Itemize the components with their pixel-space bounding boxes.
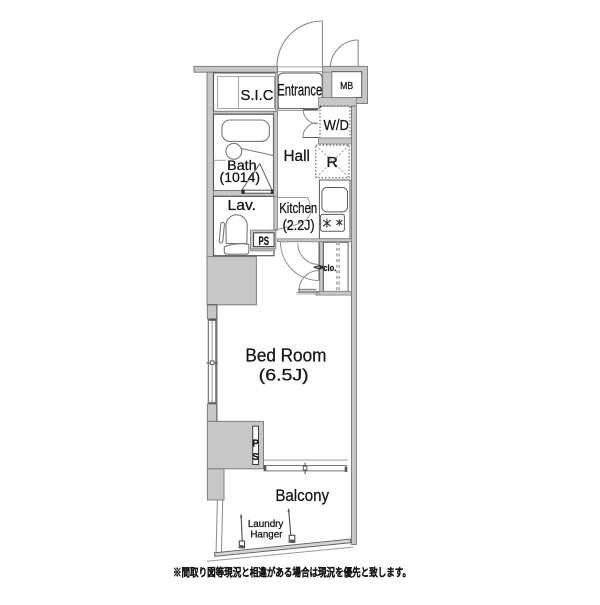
svg-text:Laundry: Laundry — [248, 519, 284, 530]
svg-text:(2.2J): (2.2J) — [283, 217, 315, 234]
svg-text:Hall: Hall — [283, 148, 310, 165]
svg-text:Lav.: Lav. — [228, 197, 257, 214]
svg-text:Entrance: Entrance — [277, 80, 322, 99]
svg-text:S.I.C: S.I.C — [241, 87, 274, 104]
svg-text:PS: PS — [259, 234, 270, 248]
svg-text:(6.5J): (6.5J) — [259, 365, 309, 384]
svg-text:Kitchen: Kitchen — [279, 200, 317, 217]
svg-text:※間取り図等現況と相違がある場合は現況を優先と致します。: ※間取り図等現況と相違がある場合は現況を優先と致します。 — [173, 565, 411, 579]
svg-text:W/D: W/D — [323, 117, 349, 134]
svg-text:MB: MB — [340, 81, 353, 92]
svg-text:P: P — [252, 439, 259, 450]
svg-text:Hanger: Hanger — [250, 530, 283, 541]
svg-text:clo.: clo. — [323, 263, 336, 274]
svg-text:S: S — [252, 452, 259, 463]
svg-text:Bed Room: Bed Room — [245, 345, 326, 365]
svg-text:Balcony: Balcony — [275, 486, 329, 505]
svg-text:R: R — [326, 154, 338, 171]
